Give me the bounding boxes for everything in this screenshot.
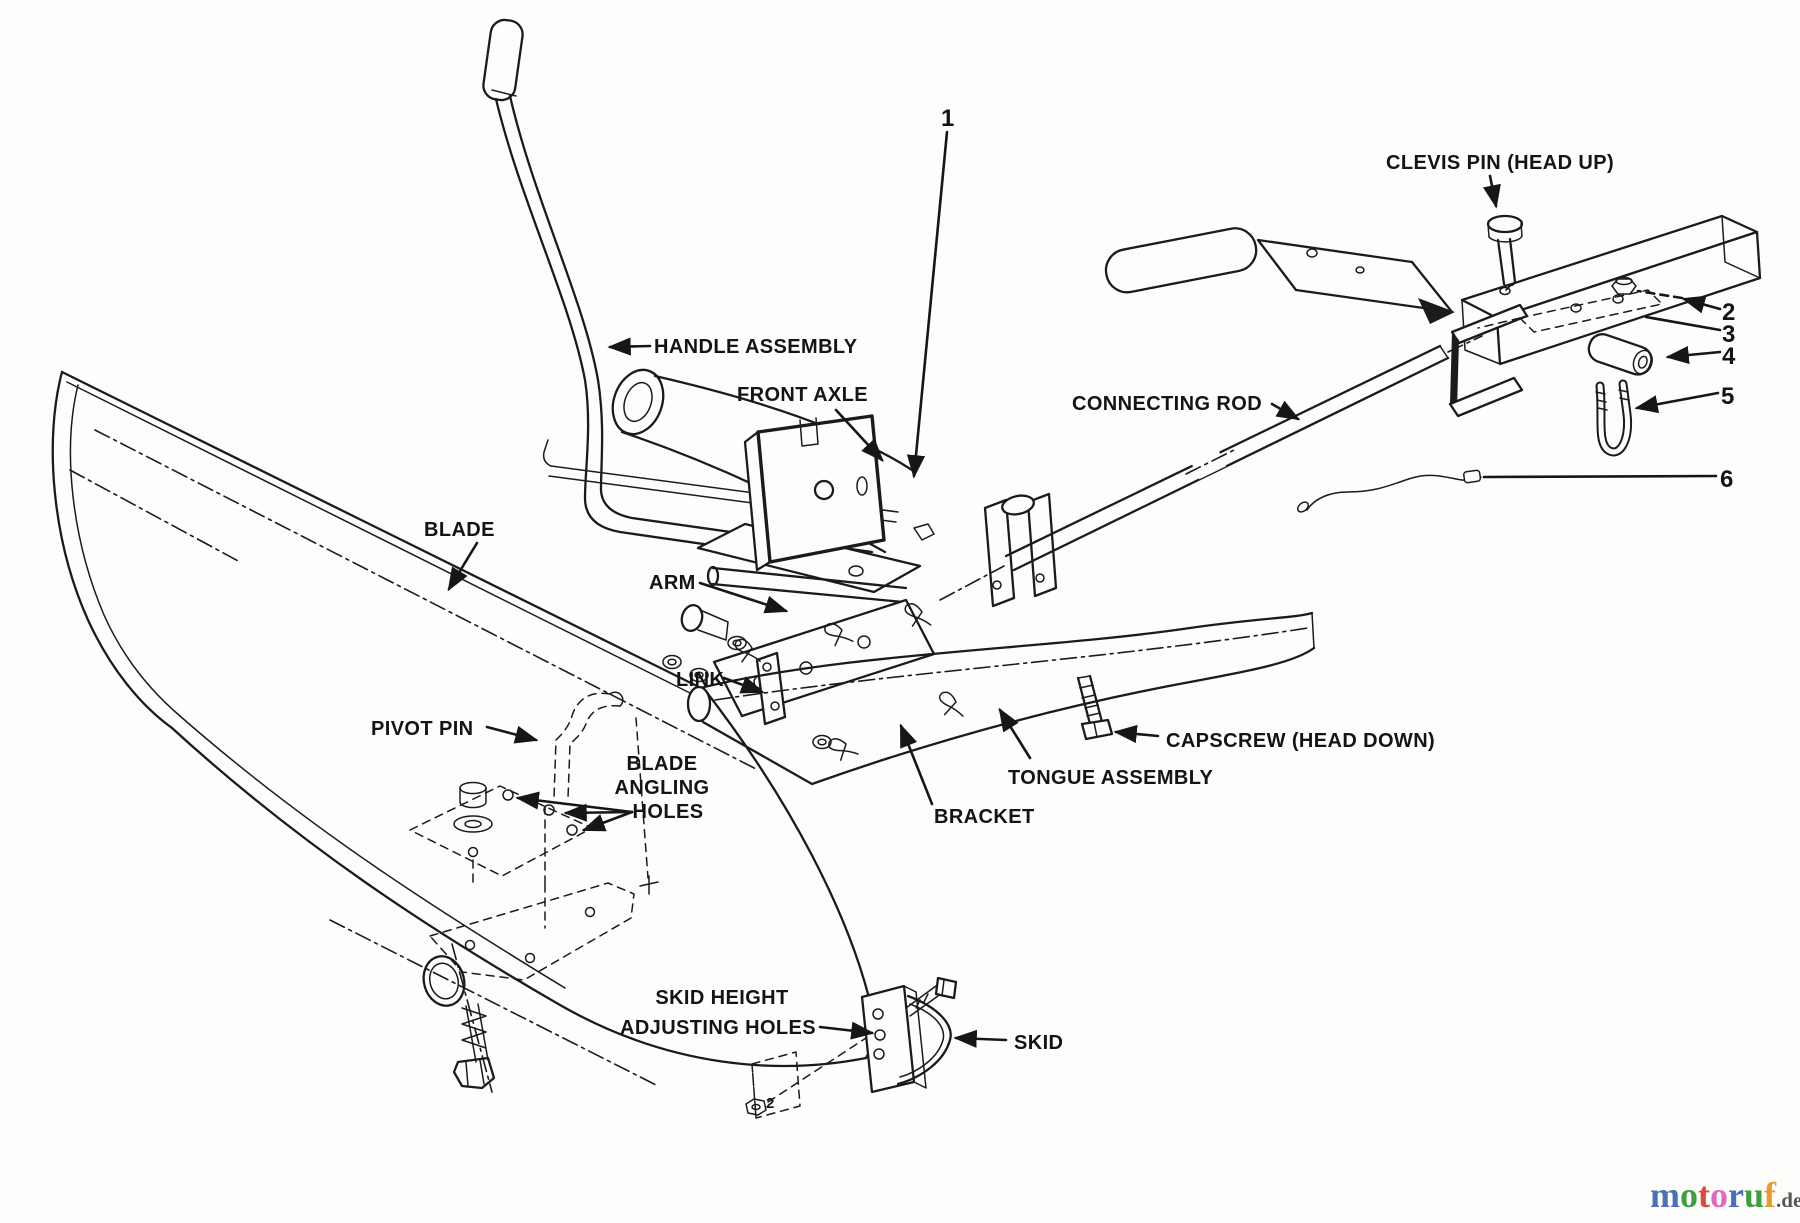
label-blade: BLADE — [424, 519, 495, 541]
label-blade-angling-line3: HOLES — [633, 801, 704, 823]
label-capscrew: CAPSCREW (HEAD DOWN) — [1166, 730, 1435, 752]
logo-letter: r — [1728, 1175, 1744, 1215]
connecting-rod-drawing — [940, 336, 1482, 600]
callout-1: 1 — [941, 105, 954, 132]
logo-letter: o — [1680, 1175, 1698, 1215]
label-skid: SKID — [1014, 1032, 1063, 1054]
callout-4: 4 — [1722, 343, 1736, 370]
label-link: LINK — [676, 669, 724, 691]
exploded-parts-drawing: CLEVIS PIN (HEAD UP) HANDLE ASSEMBLY FRO… — [0, 0, 1800, 1223]
callout-6: 6 — [1720, 466, 1733, 493]
motoruf-watermark-logo: motoruf.de — [1650, 1174, 1800, 1218]
cable-drawing — [1296, 470, 1481, 514]
logo-letter: o — [1710, 1175, 1728, 1215]
logo-letter: u — [1744, 1175, 1764, 1215]
u-bolt-drawing — [1596, 384, 1629, 452]
label-pivot-pin: PIVOT PIN — [371, 718, 474, 740]
callout-5: 5 — [1721, 383, 1734, 410]
label-blade-angling-line1: BLADE — [627, 753, 698, 775]
label-arm: ARM — [649, 572, 696, 594]
pivot-tube-drawing — [1102, 225, 1259, 296]
spacer-tube-drawing — [1585, 331, 1656, 379]
logo-letter: m — [1650, 1175, 1680, 1215]
nut-drawing — [1612, 278, 1636, 295]
label-front-axle: FRONT AXLE — [737, 384, 868, 406]
label-blade-angling-line2: ANGLING — [614, 777, 709, 799]
label-connecting-rod: CONNECTING ROD — [1072, 393, 1262, 415]
logo-suffix: .de — [1776, 1188, 1800, 1212]
hitch-plate-drawing — [1258, 240, 1455, 324]
label-tongue-assembly: TONGUE ASSEMBLY — [1008, 767, 1214, 789]
capscrew-drawing — [1078, 676, 1112, 739]
clevis-pin-drawing — [1488, 216, 1522, 290]
logo-letter: t — [1698, 1175, 1710, 1215]
label-clevis-pin: CLEVIS PIN (HEAD UP) — [1386, 152, 1614, 174]
label-skid-height-line1: SKID HEIGHT — [655, 987, 788, 1009]
parts-diagram-page: CLEVIS PIN (HEAD UP) HANDLE ASSEMBLY FRO… — [0, 0, 1800, 1223]
label-handle-assembly: HANDLE ASSEMBLY — [654, 336, 858, 358]
leader-lines — [449, 132, 1720, 1040]
logo-letter: f — [1764, 1175, 1776, 1215]
callout-skid-nut-2: 2 — [766, 1095, 774, 1112]
label-skid-height-line2: ADJUSTING HOLES — [620, 1017, 816, 1039]
label-bracket: BRACKET — [934, 806, 1035, 828]
